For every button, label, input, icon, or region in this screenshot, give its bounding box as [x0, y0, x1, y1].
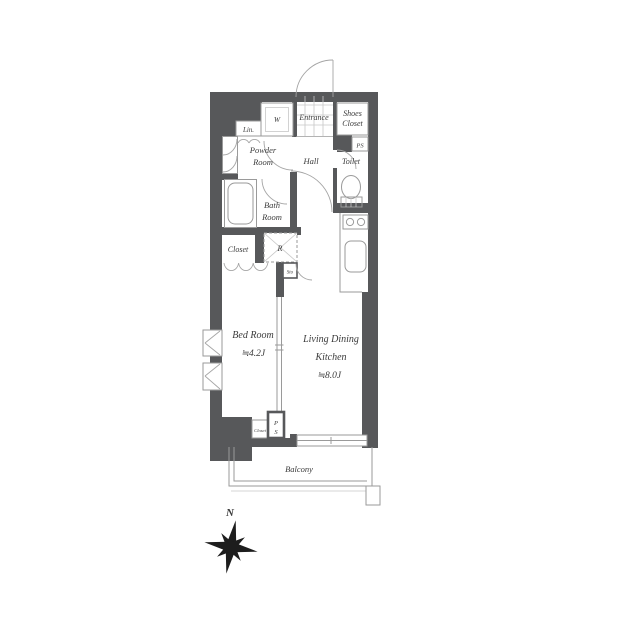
- small-closet-label: Closet: [254, 428, 266, 433]
- fridge-label: R: [277, 244, 283, 253]
- ldk-label-2: Kitchen: [314, 352, 346, 363]
- balcony-drain-box: [366, 486, 380, 505]
- hall-label: Hall: [302, 156, 319, 166]
- wall-segment: [333, 203, 368, 213]
- ldk-window: [297, 435, 367, 446]
- ps-upper-label: PS: [355, 143, 364, 150]
- compass-icon: [200, 516, 263, 579]
- bedroom-window-lower: [203, 363, 222, 390]
- shoes-closet-label-1: Shoes: [343, 109, 362, 118]
- wall-segment: [333, 102, 337, 150]
- balcony-label: Balcony: [285, 464, 313, 474]
- wall-segment: [333, 168, 337, 203]
- wall-segment: [296, 92, 333, 95]
- wall-segment: [362, 292, 378, 448]
- ps-lower-label-1: P: [273, 420, 278, 427]
- washer-label: W: [274, 115, 281, 124]
- entrance-label: Entrance: [298, 113, 329, 122]
- toilet-label: Toilet: [342, 157, 361, 166]
- wall-segment: [337, 135, 352, 152]
- wall-segment: [222, 102, 262, 121]
- floorplan-page: Entrance Shoes Closet PS Hall Toilet Lin…: [0, 0, 626, 627]
- wall-segment: [210, 102, 222, 330]
- storage-label: Sto: [287, 271, 294, 276]
- bedroom-label: Bed Room: [232, 330, 273, 341]
- powder-room-label-2: Room: [252, 157, 273, 167]
- ldk-size-label: ≒8.0J: [317, 371, 342, 381]
- wall-segment: [255, 235, 264, 263]
- wall-segment: [210, 92, 378, 102]
- wall-segment: [290, 172, 297, 235]
- bath-room-label-2: Room: [261, 212, 282, 222]
- compass-north-label: N: [225, 507, 235, 519]
- linen-label: Lin.: [242, 126, 254, 134]
- bedroom-window-upper: [203, 330, 222, 356]
- closet-label: Closet: [228, 245, 249, 254]
- shoes-closet-label-2: Closet: [342, 119, 363, 128]
- ldk-label-1: Living Dining: [302, 334, 359, 345]
- bath-room-label-1: Bath: [264, 200, 280, 210]
- wall-segment: [210, 390, 222, 418]
- wall-segment: [290, 434, 297, 447]
- floorplan-drawing: Entrance Shoes Closet PS Hall Toilet Lin…: [0, 0, 626, 627]
- wall-segment: [222, 121, 236, 136]
- powder-room-label-1: Powder: [249, 145, 277, 155]
- entrance-door: [296, 60, 333, 97]
- bedroom-size-label: ≒4.2J: [241, 349, 266, 359]
- wall-segment: [368, 102, 378, 292]
- wall-segment: [210, 417, 252, 461]
